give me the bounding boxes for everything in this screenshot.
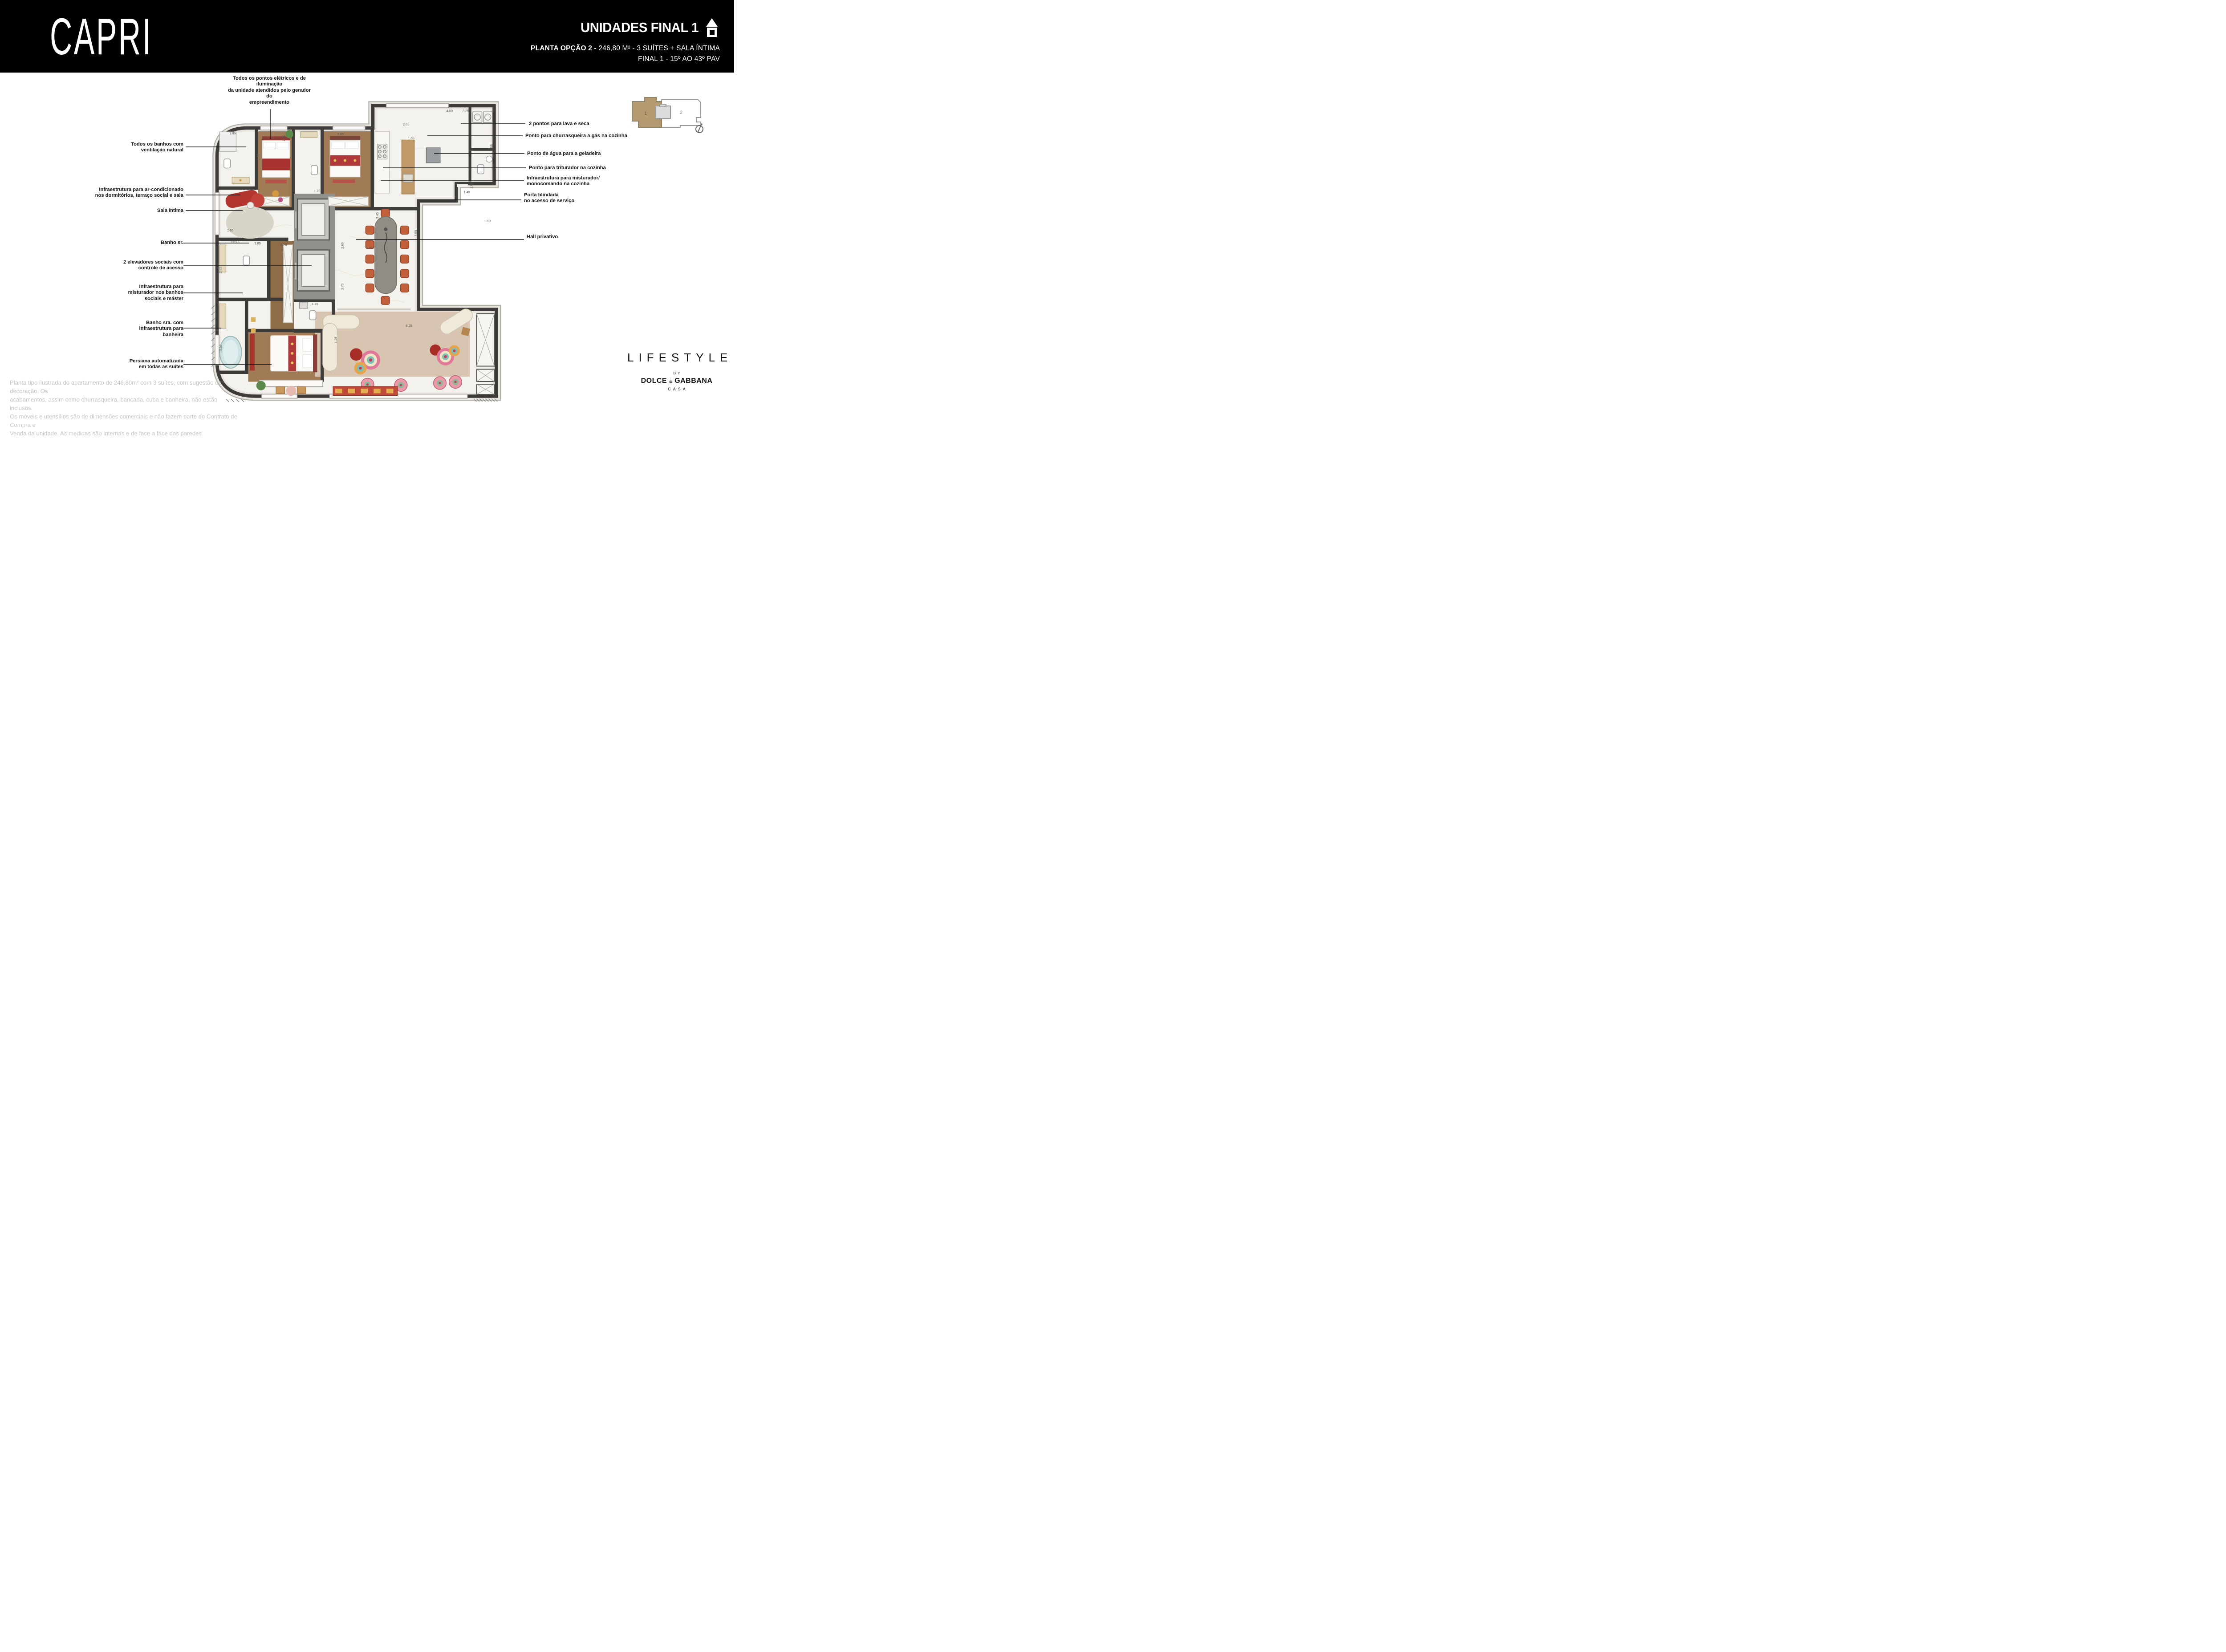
key-plan-unit1-label: 1	[644, 111, 647, 116]
svg-text:2.35: 2.35	[256, 154, 260, 160]
callout-hall-privativo: Hall privativo	[527, 234, 558, 240]
callout-banho-sra: Banho sra. com infraestrutura para banhe…	[139, 320, 183, 338]
key-plan-core-notch	[660, 104, 666, 107]
svg-text:1.70: 1.70	[314, 189, 321, 193]
svg-text:2.40: 2.40	[282, 135, 286, 142]
lifestyle-wordmark: LIFESTYLE	[627, 351, 731, 365]
svg-text:12.25: 12.25	[231, 240, 240, 244]
disclaimer-text: Planta tipo ilustrada do apartamento de …	[10, 378, 241, 438]
logo-ampersand: &	[669, 379, 672, 384]
elevators	[294, 194, 335, 300]
callout-gerador: Todos os pontos elétricos e de iluminaçã…	[223, 76, 316, 106]
svg-text:2.25: 2.25	[463, 109, 469, 113]
svg-text:1.85: 1.85	[254, 241, 261, 245]
key-plan: 1 2	[627, 91, 707, 135]
svg-text:1.10: 1.10	[484, 219, 491, 223]
logo-gabbana: GABBANA	[674, 377, 712, 385]
svg-text:4.20: 4.20	[280, 243, 287, 247]
svg-text:2.05: 2.05	[403, 122, 410, 126]
callout-lava-seca: 2 pontos para lava e seca	[529, 121, 589, 127]
svg-text:4.00: 4.00	[447, 109, 453, 113]
svg-text:1.45: 1.45	[463, 190, 470, 194]
callout-misturador-banhos: Infraestrutura para misturador nos banho…	[128, 284, 183, 302]
page: { "header": { "brand": "CAPRI", "units_t…	[0, 0, 734, 413]
svg-text:7.55: 7.55	[414, 230, 418, 237]
glass-slider	[337, 308, 411, 310]
svg-text:1.50: 1.50	[366, 246, 373, 250]
callout-geladeira: Ponto de água para a geladeira	[527, 151, 601, 157]
suite1-bed	[262, 130, 293, 183]
header-bar: CAPRI UNIDADES FINAL 1 PLANTA OPÇÃO 2 - …	[0, 0, 734, 73]
floors-subtitle: FINAL 1 - 15º AO 43º PAV	[638, 55, 720, 63]
callout-triturador: Ponto para triturador na cozinha	[529, 165, 606, 171]
callout-misturador-cozinha: Infraestrutura para misturador/ monocoma…	[527, 175, 600, 187]
svg-text:1.95: 1.95	[469, 182, 473, 189]
logo-dolce: DOLCE	[641, 377, 667, 385]
svg-text:1.65: 1.65	[227, 228, 234, 232]
dolce-gabbana-wordmark: DOLCE & GABBANA	[622, 377, 731, 385]
svg-text:3.70: 3.70	[340, 284, 344, 290]
suite2-bed	[330, 136, 360, 183]
svg-text:1.75: 1.75	[312, 302, 318, 306]
svg-text:2.60: 2.60	[340, 242, 344, 249]
callout-banho-sr: Banho sr.	[161, 240, 183, 246]
svg-text:2.80: 2.80	[337, 132, 344, 136]
svg-text:3.50: 3.50	[219, 345, 223, 351]
units-title: UNIDADES FINAL 1	[581, 20, 699, 36]
svg-text:8.25: 8.25	[406, 324, 412, 328]
key-plan-core	[655, 106, 670, 118]
key-plan-unit2-label: 2	[680, 110, 682, 115]
header-right: UNIDADES FINAL 1 PLANTA OPÇÃO 2 - 246,80…	[531, 18, 720, 63]
callout-banhos-ventilacao: Todos os banhos com ventilação natural	[131, 142, 183, 154]
callout-elevadores: 2 elevadores sociais com controle de ace…	[123, 260, 183, 272]
plan-subtitle-bold: PLANTA OPÇÃO 2 -	[531, 45, 598, 52]
svg-text:1.85: 1.85	[229, 131, 236, 135]
floor-plan: 1.85 2.35 2.40 2.80 1.70 1.65 12.25 4.00…	[205, 76, 521, 405]
brand-logo: CAPRI	[50, 11, 153, 62]
callout-ar-condicionado: Infraestrutura para ar-condicionado nos …	[95, 187, 183, 199]
callout-persiana: Persiana automatizada em todas as suítes	[130, 358, 183, 370]
svg-text:2.45: 2.45	[219, 267, 223, 273]
callout-sala-intima: Sala íntima	[157, 208, 183, 214]
svg-text:1.55: 1.55	[408, 136, 414, 140]
plan-subtitle-rest: 246,80 M² - 3 SUÍTES + SALA ÍNTIMA	[598, 45, 720, 52]
svg-text:3.45: 3.45	[375, 212, 379, 219]
svg-text:1.25: 1.25	[333, 337, 337, 344]
logo-by: BY	[624, 371, 731, 375]
tower-icon	[704, 18, 720, 37]
logo-casa: CASA	[625, 387, 731, 391]
svg-text:2.55: 2.55	[489, 144, 493, 151]
lifestyle-logo: LIFESTYLE BY DOLCE & GABBANA CASA	[622, 351, 731, 391]
plan-subtitle: PLANTA OPÇÃO 2 - 246,80 M² - 3 SUÍTES + …	[531, 45, 720, 53]
callout-porta-blindada: Porta blindada no acesso de serviço	[524, 192, 574, 204]
callout-churrasqueira: Ponto para churrasqueira a gás na cozinh…	[525, 133, 627, 139]
